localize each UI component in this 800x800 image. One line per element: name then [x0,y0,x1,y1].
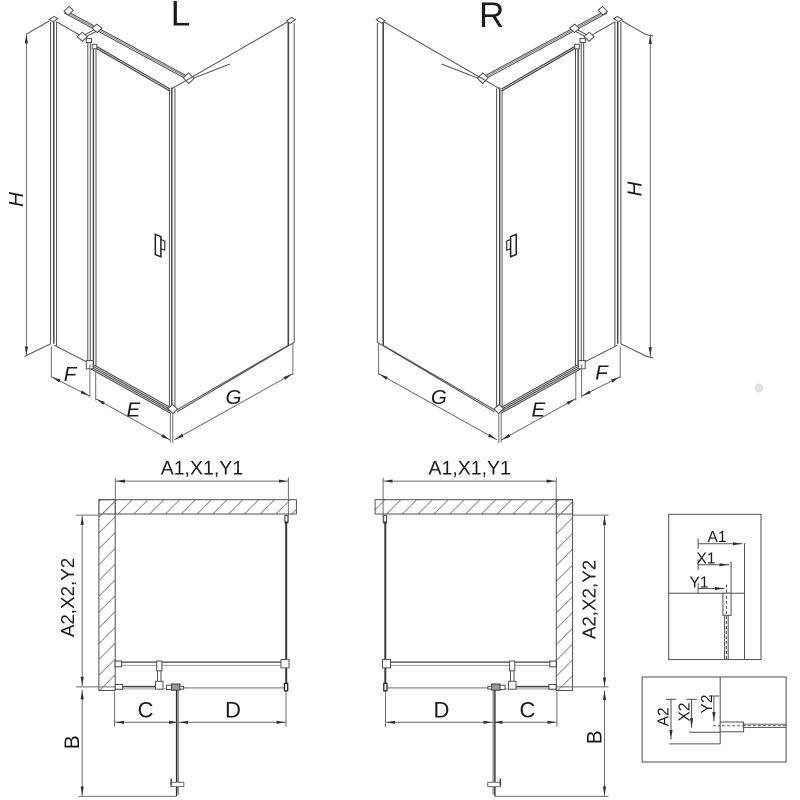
svg-text:E: E [531,399,545,422]
svg-text:A1: A1 [708,529,727,546]
svg-text:D: D [434,698,450,723]
svg-text:L: L [171,0,190,34]
svg-text:A2,X2,Y2: A2,X2,Y2 [57,558,78,637]
svg-text:Y2: Y2 [699,695,716,714]
svg-text:B: B [61,735,84,749]
svg-text:A1,X1,Y1: A1,X1,Y1 [429,457,511,479]
svg-text:H: H [624,181,647,196]
svg-text:G: G [431,386,447,409]
svg-text:X1: X1 [697,550,716,567]
svg-text:D: D [225,698,241,723]
svg-text:F: F [64,363,78,386]
svg-text:H: H [5,192,28,207]
svg-text:C: C [138,698,154,723]
svg-text:A2,X2,Y2: A2,X2,Y2 [579,560,600,639]
svg-text:E: E [127,399,141,422]
svg-text:A2: A2 [656,707,673,726]
svg-text:B: B [583,730,606,744]
svg-text:Y1: Y1 [690,574,709,591]
svg-text:C: C [520,698,536,723]
svg-text:X2: X2 [677,703,694,722]
svg-text:R: R [479,0,504,35]
svg-text:F: F [595,362,609,385]
svg-text:A1,X1,Y1: A1,X1,Y1 [161,457,243,479]
svg-text:G: G [226,386,242,409]
